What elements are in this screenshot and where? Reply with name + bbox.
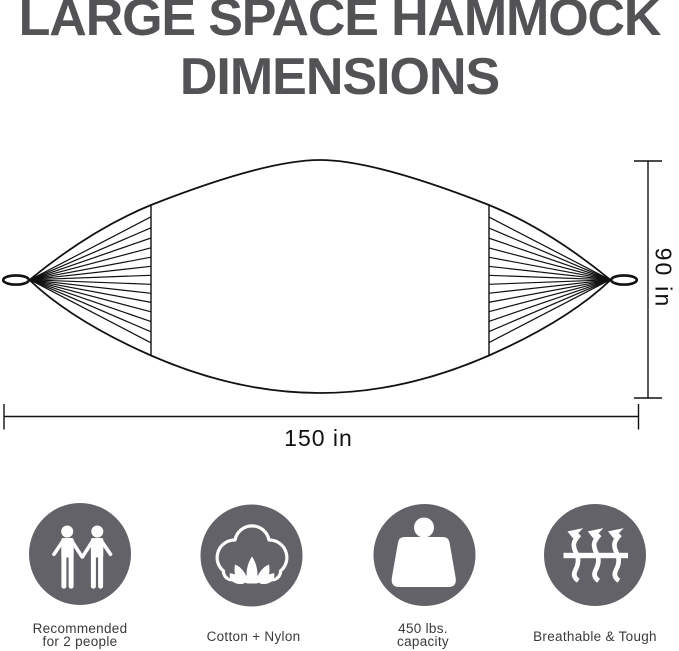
svg-text:90 in: 90 in — [650, 248, 676, 309]
svg-text:150 in: 150 in — [284, 425, 353, 451]
